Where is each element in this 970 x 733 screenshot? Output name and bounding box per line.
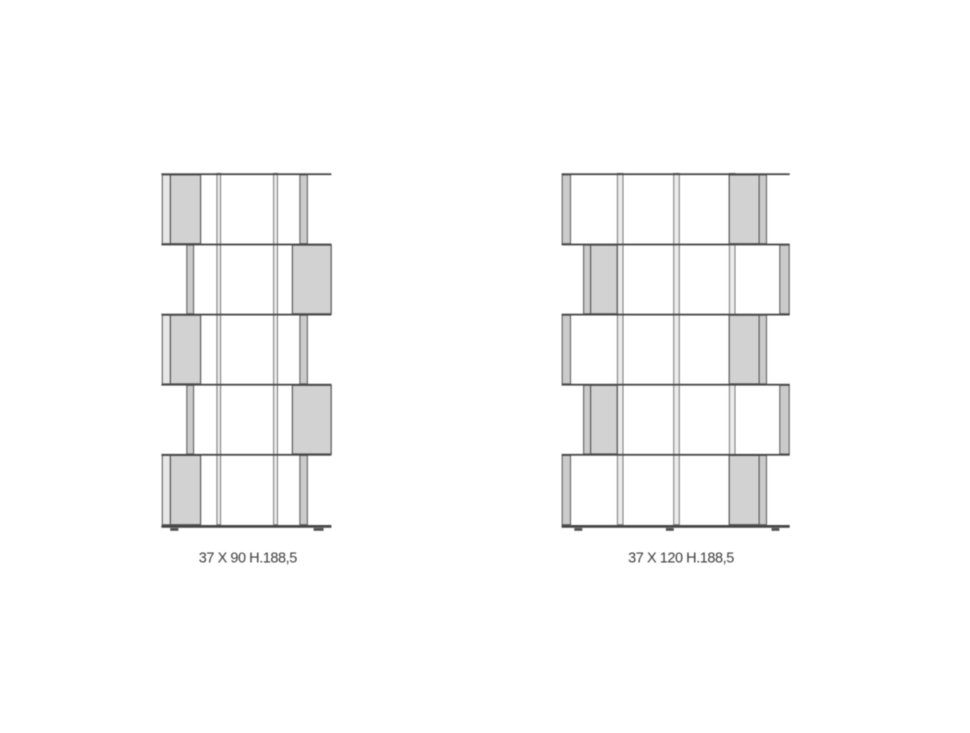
svg-text:37 X 90 H.188,5: 37 X 90 H.188,5 — [199, 551, 297, 567]
svg-text:37 X 120 H.188,5: 37 X 120 H.188,5 — [628, 551, 734, 567]
